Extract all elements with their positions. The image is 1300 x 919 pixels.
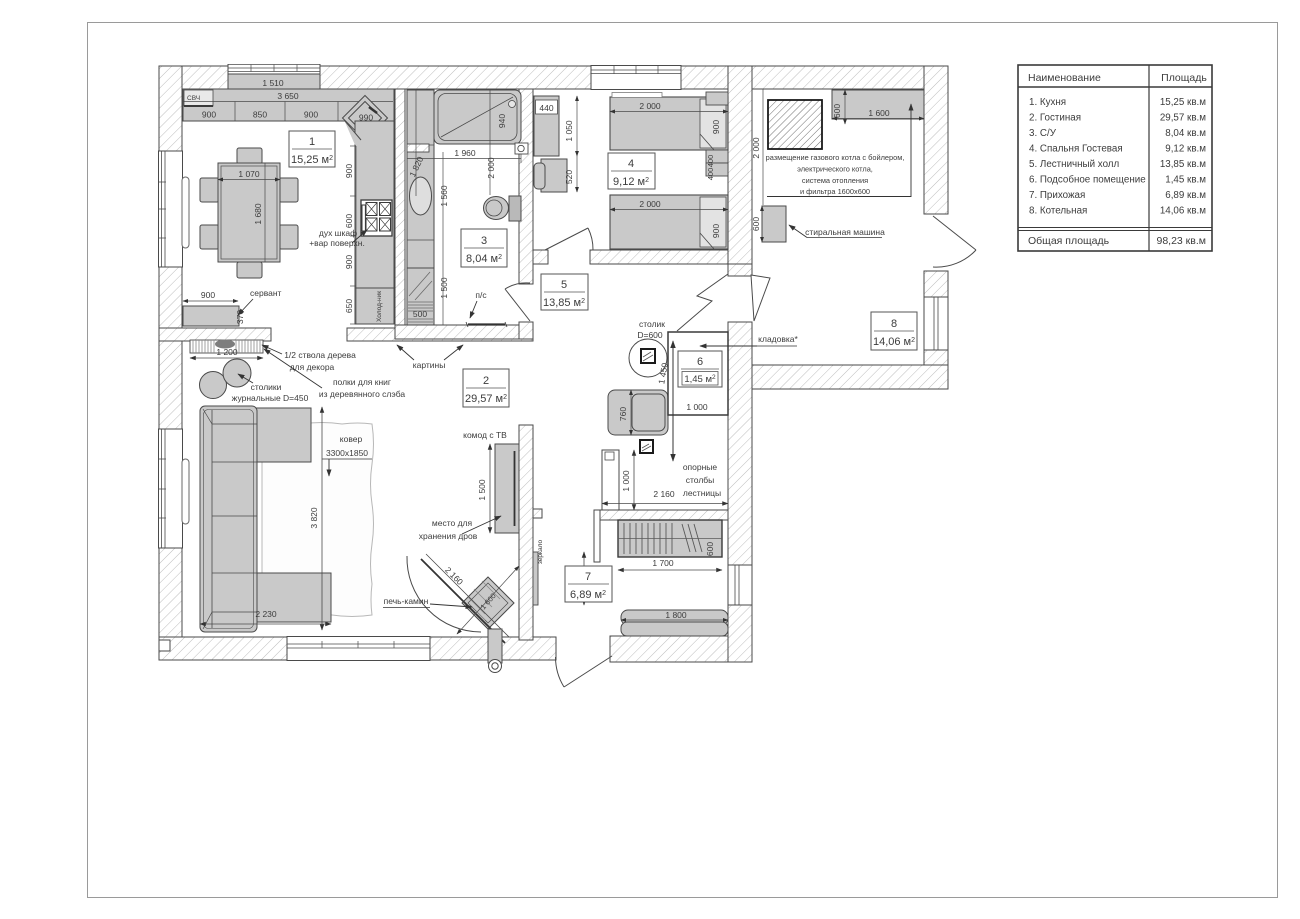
svg-text:1 960: 1 960	[454, 148, 476, 158]
svg-text:1 500: 1 500	[477, 479, 487, 501]
svg-text:комод с ТВ: комод с ТВ	[463, 430, 507, 440]
svg-text:400: 400	[706, 155, 715, 168]
svg-text:600: 600	[751, 217, 761, 231]
svg-text:4. Спальня Гостевая: 4. Спальня Гостевая	[1029, 144, 1123, 155]
svg-text:600: 600	[344, 214, 354, 228]
svg-text:900: 900	[304, 110, 318, 120]
svg-text:900: 900	[344, 164, 354, 178]
svg-text:8. Котельная: 8. Котельная	[1029, 206, 1087, 217]
svg-text:1. Кухня: 1. Кухня	[1029, 97, 1066, 108]
svg-text:6: 6	[697, 356, 703, 368]
svg-text:1,45 м2: 1,45 м2	[684, 374, 716, 385]
svg-text:3 820: 3 820	[309, 507, 319, 529]
svg-text:Наименование: Наименование	[1028, 72, 1101, 84]
svg-text:электрического котла,: электрического котла,	[797, 165, 873, 174]
svg-text:зеркало: зеркало	[537, 540, 544, 565]
svg-text:п/с: п/с	[475, 290, 487, 300]
svg-text:столбы: столбы	[686, 475, 715, 485]
svg-text:900: 900	[711, 224, 721, 238]
svg-text:600: 600	[832, 104, 842, 118]
svg-text:дух шкаф: дух шкаф	[319, 228, 357, 238]
svg-text:8,04 м2: 8,04 м2	[466, 253, 502, 265]
svg-text:900: 900	[202, 110, 216, 120]
svg-text:400: 400	[706, 168, 715, 181]
svg-text:место для: место для	[432, 518, 473, 528]
svg-text:5: 5	[561, 279, 567, 291]
svg-text:кладовка*: кладовка*	[758, 334, 798, 344]
svg-text:13,85 м2: 13,85 м2	[543, 297, 585, 309]
svg-text:6,89 кв.м: 6,89 кв.м	[1165, 190, 1206, 201]
svg-text:столик: столик	[639, 319, 665, 329]
svg-text:Холод-ник: Холод-ник	[376, 291, 383, 322]
svg-text:картины: картины	[413, 360, 446, 370]
svg-text:6,89 м2: 6,89 м2	[570, 589, 606, 601]
svg-text:6. Подсобное помещение: 6. Подсобное помещение	[1029, 175, 1146, 186]
svg-text:2 000: 2 000	[751, 137, 761, 159]
svg-text:2 000: 2 000	[639, 101, 661, 111]
svg-text:98,23 кв.м: 98,23 кв.м	[1156, 235, 1206, 247]
svg-text:Общая площадь: Общая площадь	[1028, 235, 1110, 247]
svg-text:14,06 м2: 14,06 м2	[873, 336, 915, 348]
svg-text:14,06 кв.м: 14,06 кв.м	[1160, 206, 1206, 217]
svg-text:850: 850	[253, 110, 267, 120]
svg-text:650: 650	[344, 299, 354, 313]
svg-text:9,12 м2: 9,12 м2	[613, 176, 649, 188]
svg-text:из деревянного слэба: из деревянного слэба	[319, 389, 406, 399]
svg-text:15,25 кв.м: 15,25 кв.м	[1160, 97, 1206, 108]
svg-text:1 700: 1 700	[652, 558, 674, 568]
svg-text:3300х1850: 3300х1850	[326, 448, 368, 458]
svg-text:500: 500	[413, 309, 427, 319]
svg-text:лестницы: лестницы	[683, 488, 721, 498]
svg-text:29,57 кв.м: 29,57 кв.м	[1160, 113, 1206, 124]
svg-text:1 600: 1 600	[868, 108, 890, 118]
svg-text:15,25 м2: 15,25 м2	[291, 154, 333, 166]
svg-text:440: 440	[539, 103, 553, 113]
svg-text:1 000: 1 000	[621, 470, 631, 492]
svg-text:3 650: 3 650	[277, 91, 299, 101]
svg-text:опорные: опорные	[683, 462, 718, 472]
svg-text:и фильтра 1600х600: и фильтра 1600х600	[800, 187, 870, 196]
svg-text:29,57 м2: 29,57 м2	[465, 393, 507, 405]
svg-text:3: 3	[481, 235, 487, 247]
svg-text:7: 7	[585, 571, 591, 583]
svg-text:1 070: 1 070	[238, 169, 260, 179]
svg-text:2 000: 2 000	[486, 157, 496, 179]
svg-text:520: 520	[564, 170, 574, 184]
svg-text:1,45 кв.м: 1,45 кв.м	[1165, 175, 1206, 186]
svg-text:ковер: ковер	[340, 434, 363, 444]
svg-text:900: 900	[711, 120, 721, 134]
svg-text:2 160: 2 160	[653, 489, 675, 499]
svg-text:13,85 кв.м: 13,85 кв.м	[1160, 159, 1206, 170]
svg-text:8: 8	[891, 318, 897, 330]
svg-text:1 510: 1 510	[262, 78, 284, 88]
svg-text:2: 2	[483, 375, 489, 387]
svg-text:760: 760	[618, 407, 628, 421]
svg-text:600: 600	[705, 542, 715, 556]
svg-text:журнальные D=450: журнальные D=450	[232, 393, 309, 403]
svg-text:2. Гостиная: 2. Гостиная	[1029, 113, 1081, 124]
svg-text:размещение газового котла с бо: размещение газового котла с бойлером,	[766, 153, 905, 162]
svg-text:900: 900	[344, 255, 354, 269]
svg-text:Площадь: Площадь	[1161, 72, 1207, 84]
svg-text:полки для книг: полки для книг	[333, 377, 391, 387]
svg-text:5. Лестничный холл: 5. Лестничный холл	[1029, 159, 1120, 170]
svg-text:370: 370	[235, 310, 245, 324]
svg-text:стиральная машина: стиральная машина	[805, 227, 885, 237]
svg-text:7. Прихожая: 7. Прихожая	[1029, 190, 1085, 201]
svg-text:9,12 кв.м: 9,12 кв.м	[1165, 144, 1206, 155]
svg-text:1 200: 1 200	[216, 347, 238, 357]
svg-text:D=600: D=600	[637, 330, 663, 340]
svg-text:2 230: 2 230	[255, 609, 277, 619]
svg-text:1 000: 1 000	[686, 402, 708, 412]
svg-text:1 800: 1 800	[665, 610, 687, 620]
svg-text:сервант: сервант	[250, 288, 282, 298]
svg-text:1: 1	[309, 136, 315, 148]
svg-text:2 000: 2 000	[639, 199, 661, 209]
svg-text:1 560: 1 560	[439, 185, 449, 207]
svg-text:столики: столики	[251, 382, 282, 392]
svg-text:4: 4	[628, 158, 634, 170]
svg-text:печь-камин: печь-камин	[384, 596, 429, 606]
svg-text:940: 940	[497, 114, 507, 128]
svg-text:хранения дров: хранения дров	[419, 531, 478, 541]
svg-text:1 050: 1 050	[564, 120, 574, 142]
svg-text:8,04 кв.м: 8,04 кв.м	[1165, 128, 1206, 139]
svg-text:1 500: 1 500	[439, 277, 449, 299]
svg-text:СВЧ: СВЧ	[187, 95, 200, 102]
svg-text:система отопления: система отопления	[802, 176, 868, 185]
svg-text:1/2 ствола дерева: 1/2 ствола дерева	[284, 350, 356, 360]
svg-text:900: 900	[201, 290, 215, 300]
svg-text:1 680: 1 680	[253, 203, 263, 225]
svg-text:3. С/У: 3. С/У	[1029, 128, 1057, 139]
